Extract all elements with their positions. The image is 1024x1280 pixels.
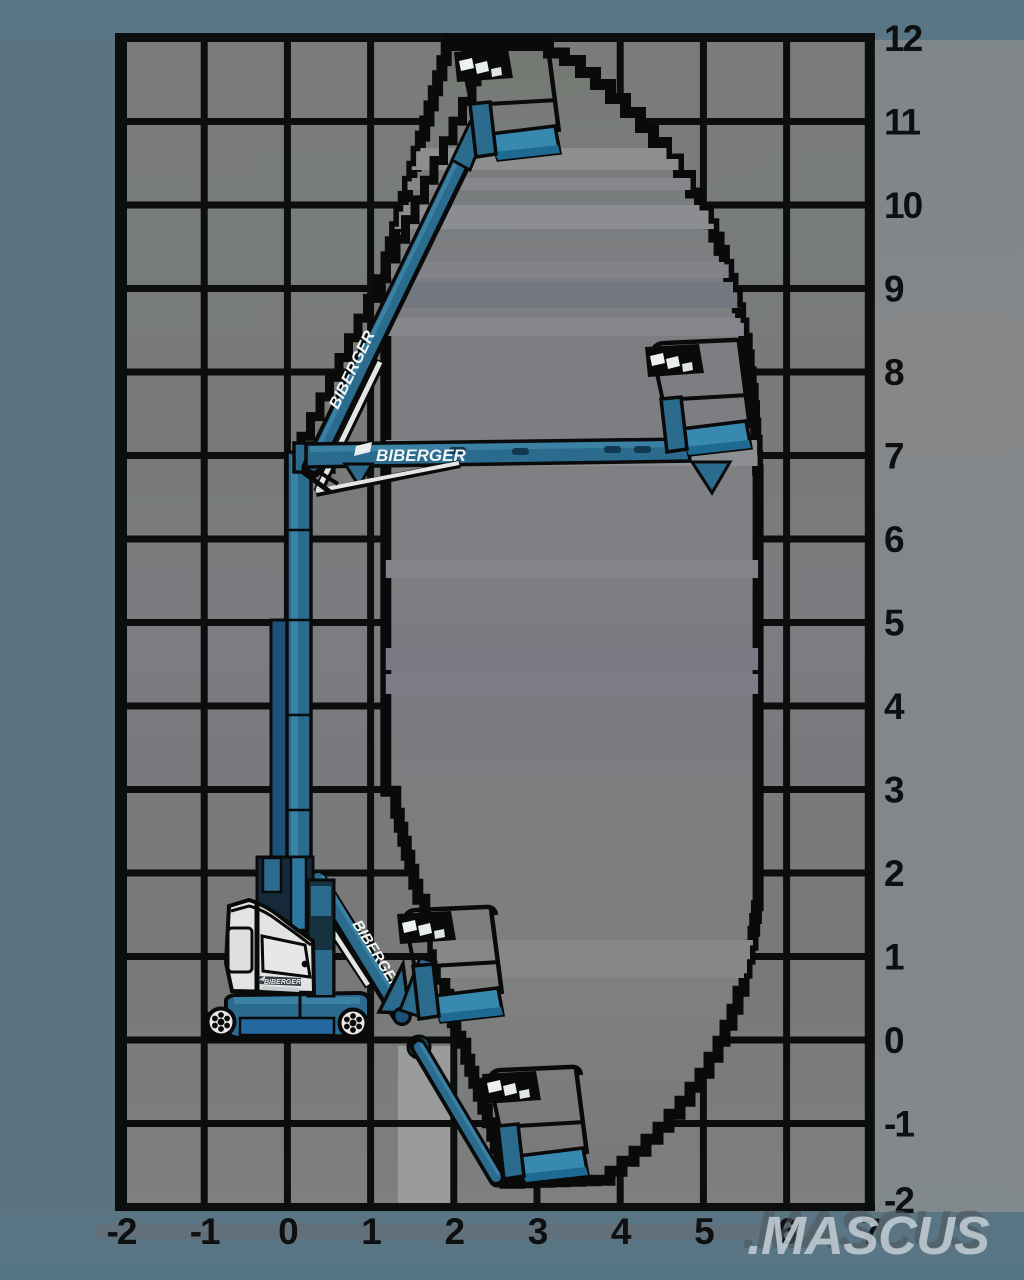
svg-text:8: 8 <box>884 352 904 393</box>
svg-text:12: 12 <box>884 18 923 59</box>
svg-text:1: 1 <box>361 1211 381 1252</box>
svg-text:9: 9 <box>884 269 904 310</box>
svg-text:-1: -1 <box>190 1211 220 1252</box>
svg-text:4: 4 <box>611 1211 632 1252</box>
svg-text:6: 6 <box>884 519 904 560</box>
svg-text:10: 10 <box>884 185 923 226</box>
svg-text:0: 0 <box>278 1211 298 1252</box>
svg-text:3: 3 <box>884 770 904 811</box>
svg-text:3: 3 <box>528 1211 548 1252</box>
svg-text:BIBERGER: BIBERGER <box>264 979 301 986</box>
svg-text:5: 5 <box>694 1211 714 1252</box>
svg-text:2: 2 <box>884 853 904 894</box>
svg-text:2: 2 <box>445 1211 465 1252</box>
svg-text:.MASCUS: .MASCUS <box>747 1206 990 1266</box>
svg-text:0: 0 <box>884 1020 904 1061</box>
svg-text:-1: -1 <box>884 1104 914 1145</box>
svg-text:7: 7 <box>884 436 903 477</box>
svg-text:4: 4 <box>884 686 905 727</box>
svg-text:-2: -2 <box>107 1211 137 1252</box>
svg-text:5: 5 <box>884 603 904 644</box>
svg-text:11: 11 <box>884 102 921 143</box>
svg-text:1: 1 <box>884 937 904 978</box>
